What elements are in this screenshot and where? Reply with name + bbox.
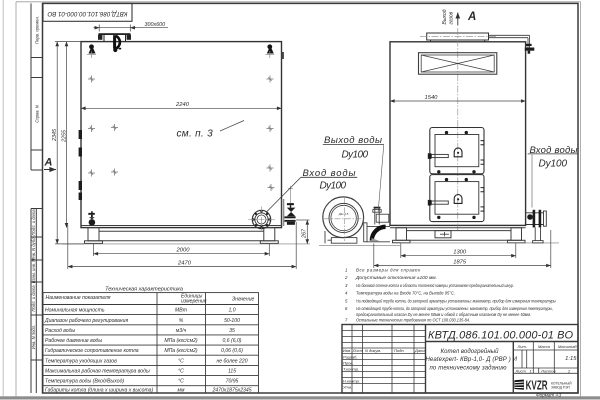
svg-text:измерения: измерения — [181, 298, 207, 304]
svg-text:Подп.: Подп. — [394, 348, 405, 353]
svg-text:газов: газов — [448, 11, 454, 24]
svg-text:Дата: Дата — [414, 348, 426, 353]
svg-text:2240: 2240 — [175, 102, 190, 108]
svg-text:ДН-3,5: ДН-3,5 — [338, 212, 349, 216]
svg-text:м3/ч: м3/ч — [176, 328, 187, 334]
svg-text:70/95: 70/95 — [226, 379, 239, 385]
svg-text:N докум.: N докум. — [365, 348, 381, 353]
svg-text:Лист: Лист — [515, 369, 527, 374]
svg-text:Диапазон рабочего регулировани: Диапазон рабочего регулирования — [44, 318, 128, 324]
svg-text:Утв.: Утв. — [343, 385, 352, 390]
svg-text:Взам. инв. N: Взам. инв. N — [31, 258, 36, 283]
svg-text:2255: 2255 — [61, 129, 67, 143]
svg-text:2470: 2470 — [177, 260, 192, 266]
svg-text:2: 2 — [344, 275, 348, 280]
svg-text:7: 7 — [345, 317, 348, 322]
svg-text:ЗАВОД РЭП: ЗАВОД РЭП — [551, 385, 570, 389]
svg-text:Н.контр.: Н.контр. — [343, 379, 360, 384]
svg-text:Справ. N: Справ. N — [35, 104, 40, 122]
svg-text:2345: 2345 — [52, 128, 58, 142]
svg-text:2: 2 — [567, 369, 571, 374]
svg-text:Heatexpert- КВр-1,0- Д (РВР ): Heatexpert- КВр-1,0- Д (РВР ) И — [425, 357, 517, 363]
svg-text:3: 3 — [345, 283, 348, 288]
svg-text:6: 6 — [345, 306, 348, 311]
svg-text:1540: 1540 — [425, 95, 439, 101]
svg-text:1: 1 — [345, 268, 348, 273]
svg-text:Формат А3: Формат А3 — [536, 393, 562, 398]
svg-text:°С: °С — [178, 369, 184, 375]
svg-text:Инв. N дубл.: Инв. N дубл. — [31, 236, 36, 260]
svg-text:Допустимые отклонения ±100 мм: Допустимые отклонения ±100 мм. — [355, 275, 437, 280]
svg-text:Подп. и дата: Подп. и дата — [31, 209, 36, 236]
svg-text:1300: 1300 — [453, 250, 467, 256]
svg-text:Масса: Масса — [538, 344, 551, 349]
svg-text:Температура воды на Входе 70°: Температура воды на Входе 70°С, на Выход… — [356, 291, 455, 296]
svg-text:КВТД.086.101.00.000-01 ВО: КВТД.086.101.00.000-01 ВО — [428, 329, 573, 341]
svg-text:Расход воды: Расход воды — [45, 328, 75, 334]
svg-text:Подп. и дата: Подп. и дата — [31, 285, 36, 312]
svg-text:2470х1875х2345: 2470х1875х2345 — [211, 388, 251, 394]
svg-text:°С: °С — [178, 358, 184, 364]
svg-text:5: 5 — [345, 298, 348, 303]
svg-text:1875: 1875 — [453, 259, 467, 265]
svg-text:Изм.: Изм. — [343, 348, 352, 353]
svg-text:Dy100: Dy100 — [342, 149, 369, 160]
svg-text:Остальные технические требован: Остальные технические требования по ОСТ … — [356, 317, 470, 322]
svg-text:Техническая характеристика: Техническая характеристика — [105, 286, 183, 292]
svg-text:Номинальная мощность: Номинальная мощность — [45, 308, 105, 314]
svg-text:Листов: Листов — [540, 369, 556, 374]
svg-text:Габариты котла (длина х ширина: Габариты котла (длина х ширина х высота) — [45, 388, 153, 394]
svg-text:KVZR: KVZR — [526, 378, 548, 392]
svg-text:Гидравлическое сопротивление к: Гидравлическое сопротивление котла — [45, 348, 139, 354]
svg-text:Лит.: Лит. — [517, 344, 527, 349]
svg-text:На боковой стенке котла в обла: На боковой стенке котла в области топочн… — [356, 283, 514, 288]
svg-text:Выход: Выход — [442, 9, 448, 24]
svg-text:Масштаб: Масштаб — [558, 344, 577, 349]
svg-text:0,6 (6,0): 0,6 (6,0) — [223, 338, 242, 344]
svg-text:Dy100: Dy100 — [539, 159, 568, 170]
svg-text:Котел водогрейный: Котел водогрейный — [441, 348, 500, 355]
svg-text:Температура уходящих газов: Температура уходящих газов — [45, 358, 117, 364]
svg-text:предохранительный клапан Dу н: предохранительный клапан Dу не менее 50м… — [356, 312, 531, 317]
svg-text:А: А — [44, 157, 53, 169]
svg-text:А: А — [467, 11, 476, 23]
svg-text:%: % — [179, 318, 184, 324]
svg-text:не более 220: не более 220 — [216, 358, 247, 364]
svg-text:На подводящей трубе котла, до: На подводящей трубе котла, до запорной а… — [356, 298, 557, 303]
svg-text:Пров.: Пров. — [343, 361, 354, 366]
svg-text:Dy100: Dy100 — [320, 181, 347, 192]
svg-text:МПа (кгс/см2): МПа (кгс/см2) — [164, 348, 198, 354]
svg-text:Наименование показателя: Наименование показателя — [46, 295, 111, 301]
svg-text:КВТД.086.101.00.000-01 ВО: КВТД.086.101.00.000-01 ВО — [47, 10, 128, 17]
svg-text:Температура воды (Вход/Выход): Температура воды (Вход/Выход) — [45, 379, 124, 385]
svg-text:35: 35 — [229, 328, 235, 334]
svg-text:МВт: МВт — [175, 308, 187, 314]
svg-text:50-100: 50-100 — [224, 318, 240, 324]
svg-text:0,06 (0,6): 0,06 (0,6) — [221, 348, 243, 354]
svg-text:Инв. N подл.: Инв. N подл. — [31, 325, 36, 349]
svg-text:4: 4 — [345, 291, 348, 296]
svg-text:Все размеры для справок: Все размеры для справок — [356, 268, 421, 273]
svg-text:Лист: Лист — [352, 348, 364, 353]
svg-text:Перв. примен.: Перв. примен. — [35, 16, 40, 44]
svg-text:267: 267 — [302, 228, 308, 239]
svg-text:см. п. 3: см. п. 3 — [177, 129, 214, 140]
svg-text:Рабочее давление воды: Рабочее давление воды — [45, 338, 102, 344]
svg-text:1,0: 1,0 — [228, 308, 235, 314]
svg-text:На отводящей трубе котла, до з: На отводящей трубе котла, до запорной ар… — [356, 306, 553, 311]
svg-text:2000: 2000 — [176, 248, 191, 254]
svg-text:Значение: Значение — [232, 296, 255, 302]
svg-text:1:15: 1:15 — [565, 356, 577, 362]
svg-text:мм: мм — [178, 388, 185, 394]
svg-text:115: 115 — [228, 369, 236, 375]
svg-text:Т.контр.: Т.контр. — [343, 367, 359, 372]
svg-text:300х600: 300х600 — [145, 22, 166, 28]
svg-text:1: 1 — [530, 369, 532, 374]
svg-text:МПа (кгс/см2): МПа (кгс/см2) — [164, 338, 198, 344]
svg-text:Разраб.: Разраб. — [343, 355, 357, 360]
svg-text:Максимальная рабочая температу: Максимальная рабочая температура воды — [45, 369, 150, 375]
svg-text:по техническому заданию: по техническому заданию — [430, 366, 507, 372]
svg-text:°С: °С — [178, 379, 184, 385]
